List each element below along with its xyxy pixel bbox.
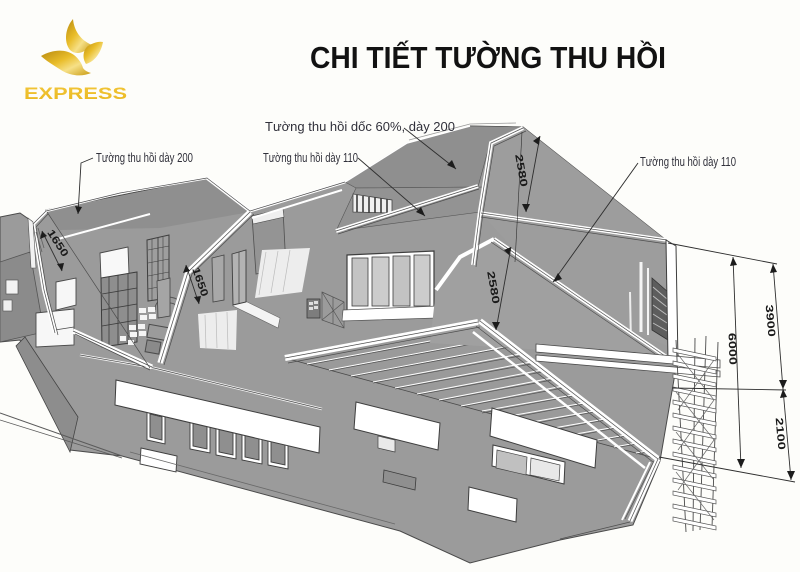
svg-text:Tường thu hồi dày 200: Tường thu hồi dày 200 bbox=[96, 151, 193, 165]
svg-text:Tường thu hồi dốc 60%, dày 200: Tường thu hồi dốc 60%, dày 200 bbox=[265, 120, 455, 134]
svg-text:EXPRESS: EXPRESS bbox=[24, 85, 127, 103]
svg-text:3900: 3900 bbox=[763, 304, 778, 337]
svg-text:Tường thu hồi dày 110: Tường thu hồi dày 110 bbox=[263, 151, 358, 165]
svg-text:6000: 6000 bbox=[725, 333, 738, 366]
svg-text:2100: 2100 bbox=[773, 417, 788, 450]
svg-text:CHI TIẾT TƯỜNG THU HỒI: CHI TIẾT TƯỜNG THU HỒI bbox=[310, 39, 666, 75]
svg-text:Tường thu hồi dày 110: Tường thu hồi dày 110 bbox=[640, 155, 736, 169]
